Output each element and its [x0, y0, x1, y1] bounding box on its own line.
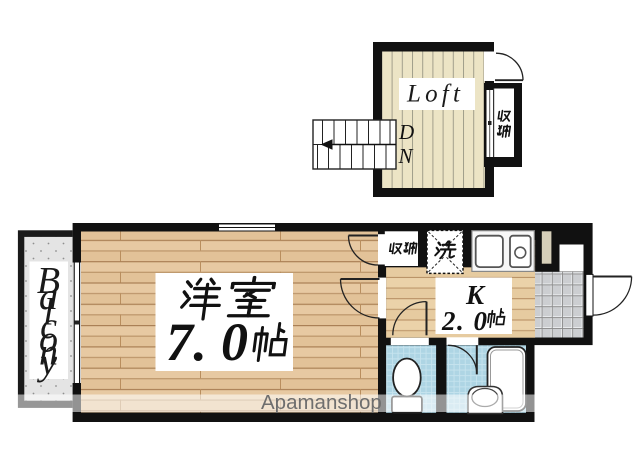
svg-text:Apamanshop: Apamanshop [261, 391, 382, 414]
svg-text:D: D [398, 120, 414, 144]
svg-text:Loft: Loft [406, 81, 464, 108]
svg-text:7. 0: 7. 0 [166, 312, 248, 372]
svg-text:y: y [36, 342, 57, 384]
svg-text:N: N [398, 144, 414, 168]
